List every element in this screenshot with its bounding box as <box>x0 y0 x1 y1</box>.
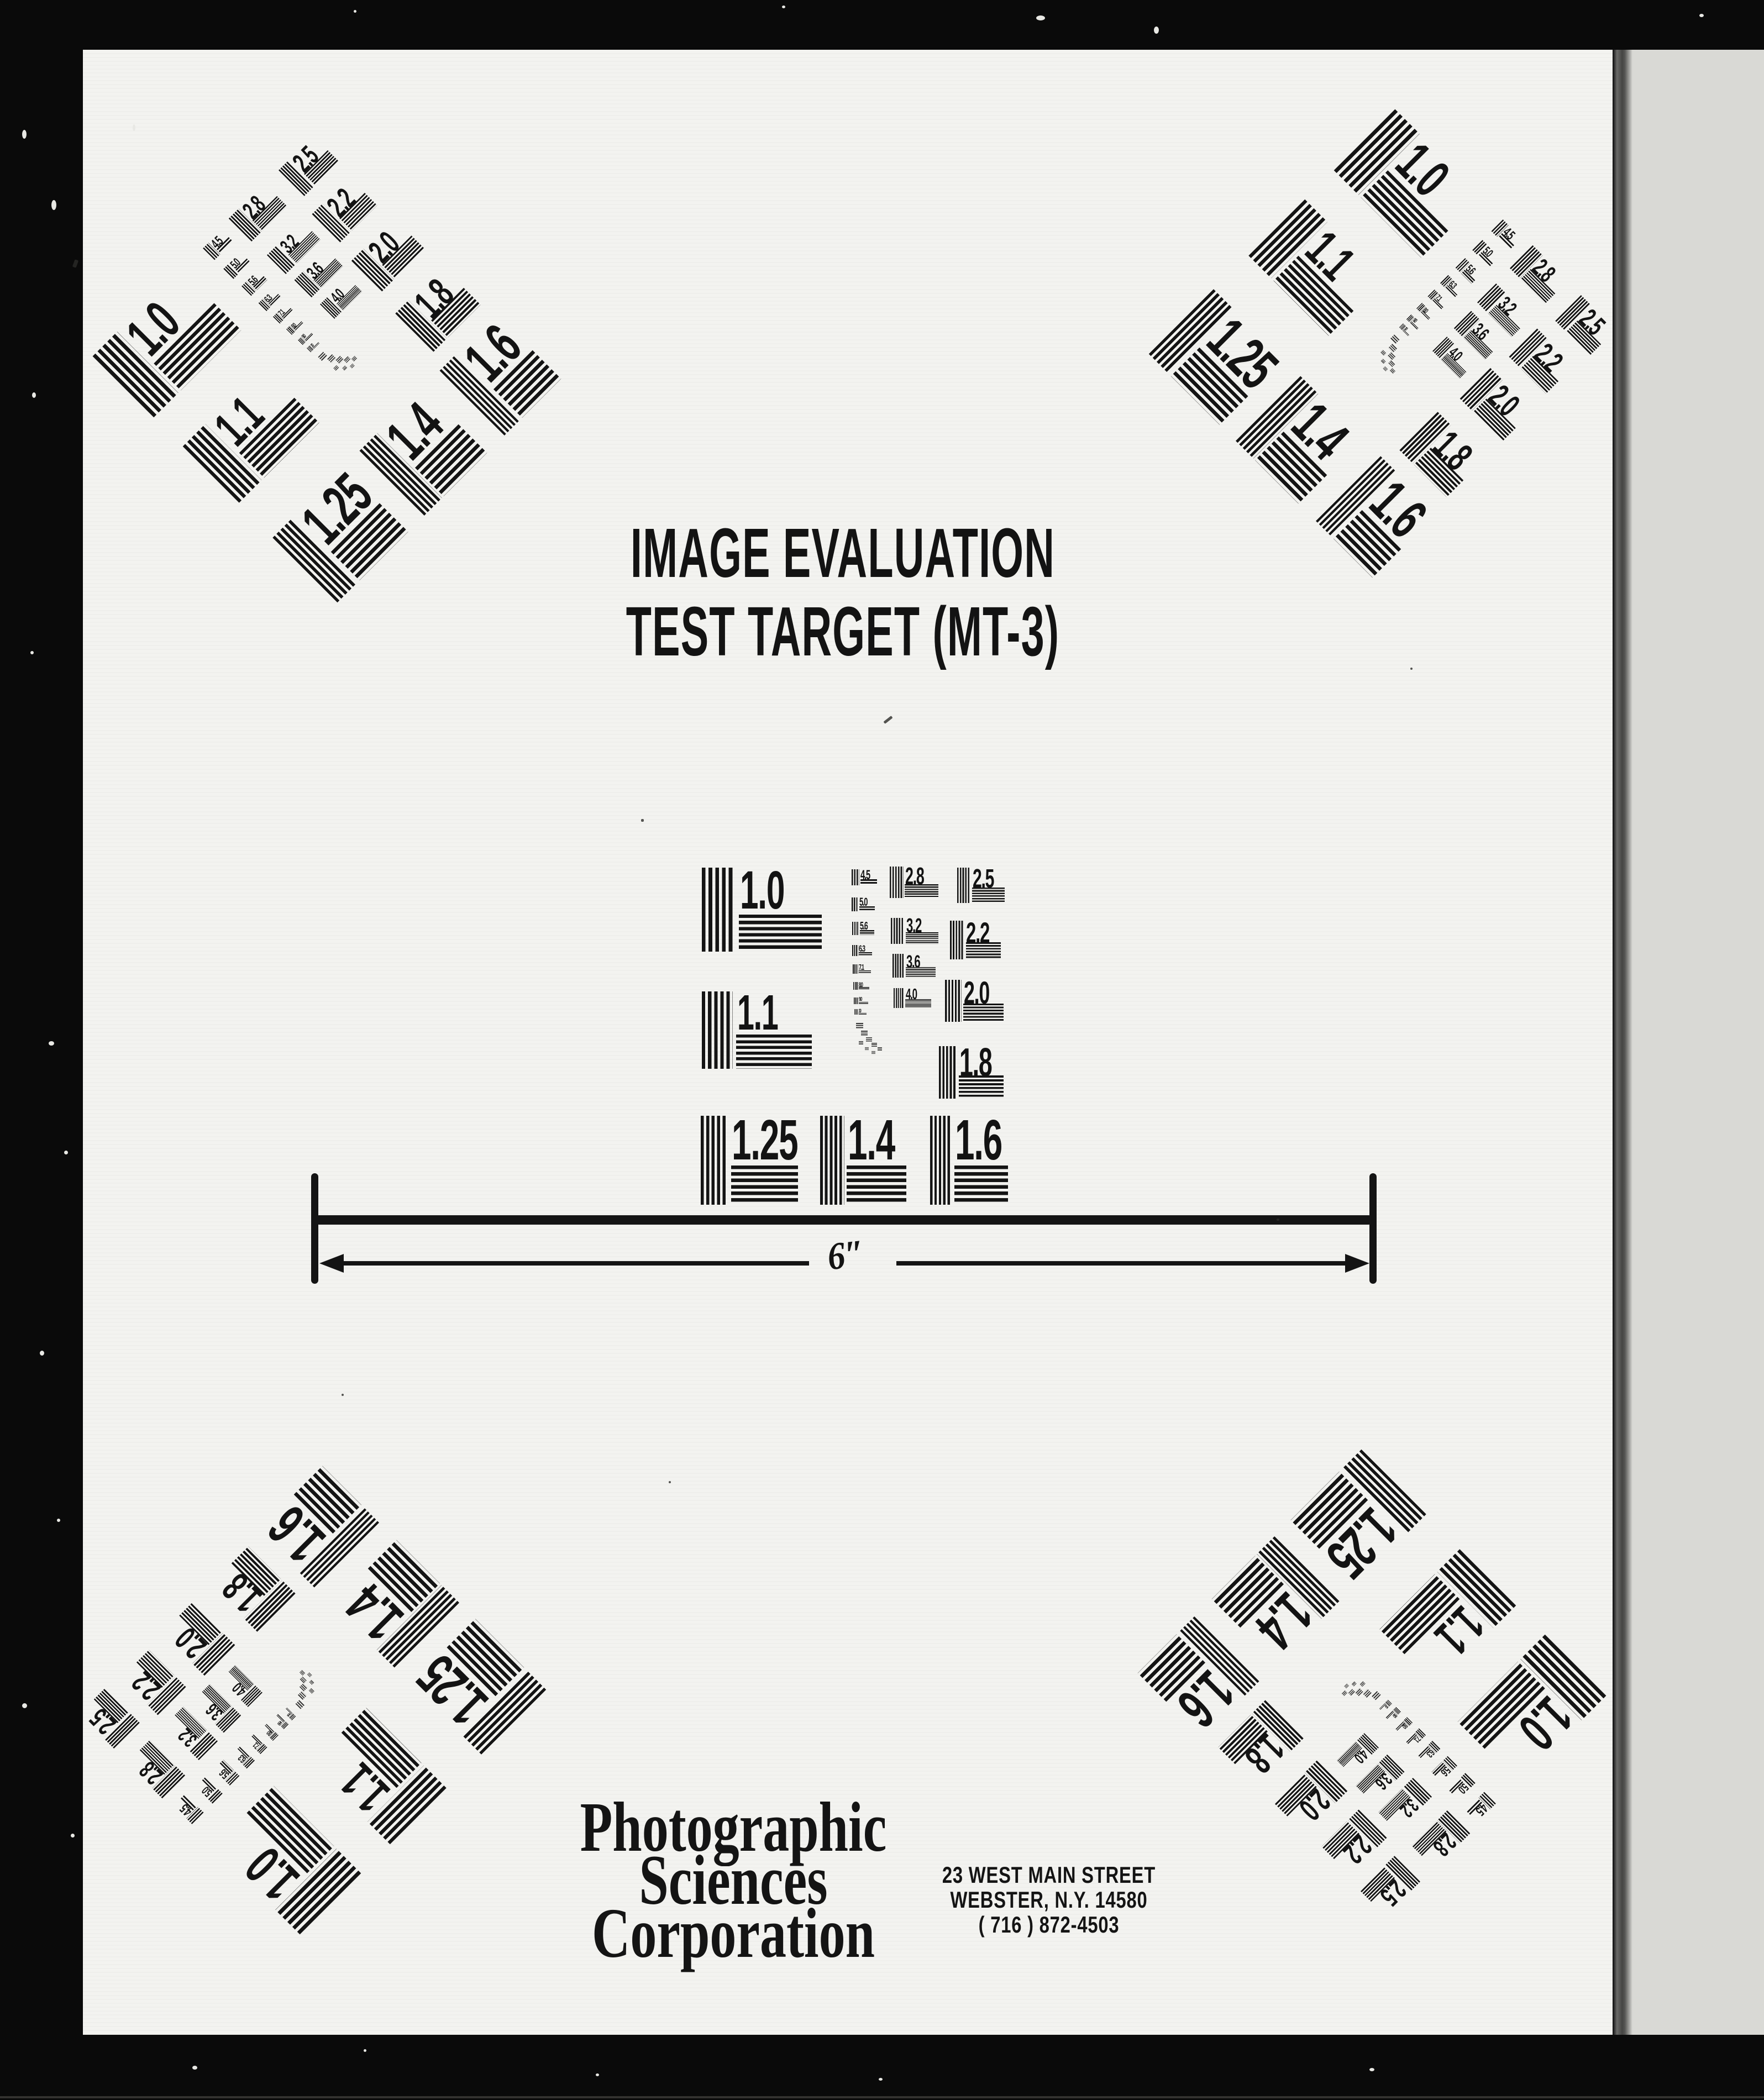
vertical-bars <box>853 982 858 990</box>
micro-resolution-mark <box>865 1047 869 1051</box>
film-speck <box>1369 2068 1374 2071</box>
resolution-element-8.0: 8.0 <box>1393 1716 1413 1736</box>
resolution-element-5.6: 5.6 <box>852 922 877 936</box>
film-speck <box>782 6 785 8</box>
micro-resolution-mark <box>350 364 355 369</box>
micro-resolution-mark <box>1388 352 1395 360</box>
resolution-element-10: 10 <box>854 1009 868 1015</box>
micro-resolution-mark <box>307 1672 313 1677</box>
horizontal-bars <box>859 1002 868 1004</box>
film-border-top <box>0 0 1764 50</box>
film-speck <box>354 10 356 13</box>
film-speck <box>32 392 36 398</box>
vertical-bars <box>945 980 962 1022</box>
horizontal-bars <box>847 1165 906 1205</box>
horizontal-bars <box>859 952 872 956</box>
film-speck <box>133 124 135 131</box>
micro-resolution-mark <box>351 356 358 362</box>
film-speck <box>596 2073 599 2076</box>
vertical-bars <box>852 897 858 911</box>
resolution-element-5.6: 5.6 <box>242 268 270 296</box>
scale-length-label: 6″ <box>826 1232 867 1279</box>
resolution-element-2.2: 2.2 <box>1322 1810 1387 1875</box>
address-line-2: WEBSTER, N.Y. 14580 <box>942 1887 1156 1912</box>
film-speck <box>57 1519 60 1522</box>
vertical-bars <box>939 1046 957 1099</box>
resolution-element-2.2: 2.2 <box>1509 329 1574 394</box>
title-line-2: TEST TARGET (MT-3) <box>626 592 1060 671</box>
micro-resolution-mark <box>298 1691 307 1700</box>
resolution-element-4.5: 4.5 <box>852 869 880 886</box>
resolution-element-8.0: 8.0 <box>286 316 306 335</box>
resolution-element-8.0: 8.0 <box>260 1721 279 1741</box>
horizontal-bars <box>860 879 877 885</box>
film-speck <box>1699 14 1704 17</box>
micro-resolution-mark <box>1389 368 1395 374</box>
micro-resolution-mark <box>1363 1689 1372 1698</box>
horizontal-bars <box>972 888 1005 903</box>
left-arrowhead-icon <box>319 1254 344 1273</box>
vertical-bars <box>891 918 904 944</box>
micro-resolution-mark <box>333 365 339 371</box>
vertical-bars <box>702 868 736 952</box>
film-speck <box>71 1834 75 1838</box>
resolution-element-2.5: 2.5 <box>957 868 1005 903</box>
micro-resolution-mark <box>335 356 343 364</box>
micro-resolution-mark <box>1341 1690 1347 1696</box>
vertical-bars <box>854 1009 858 1015</box>
resolution-element-5.0: 5.0 <box>223 250 253 280</box>
scale-end-bar-left <box>311 1173 318 1284</box>
resolution-element-2.2: 2.2 <box>950 921 1001 959</box>
horizontal-bars <box>905 999 931 1008</box>
micro-resolution-mark <box>872 1051 875 1054</box>
film-speck <box>30 651 34 654</box>
vertical-bars <box>702 991 733 1069</box>
horizontal-bars <box>859 970 870 974</box>
company-logo: Photographic Sciences Corporation <box>529 1800 938 1960</box>
micro-resolution-mark <box>300 1676 307 1683</box>
resolution-label: 1.25 <box>732 1110 797 1170</box>
resolution-element-6.3: 6.3 <box>1415 1740 1440 1765</box>
horizontal-bars <box>312 342 319 349</box>
resolution-element-5.0: 5.0 <box>1446 1773 1476 1803</box>
vertical-bars <box>930 1116 952 1205</box>
resolution-label: 1.0 <box>740 862 784 918</box>
horizontal-bars <box>959 1075 1004 1099</box>
resolution-element-7.1: 7.1 <box>1404 1728 1426 1750</box>
vertical-bars <box>820 1116 844 1205</box>
micro-resolution-mark <box>300 1670 306 1676</box>
resolution-element-7.1: 7.1 <box>1427 290 1450 312</box>
page-edge-shadow <box>1613 50 1632 2035</box>
micro-resolution-mark <box>1348 1688 1355 1695</box>
film-border-left <box>0 50 83 2035</box>
vertical-bars <box>854 998 858 1004</box>
horizontal-bars <box>736 1035 812 1069</box>
vertical-bars <box>890 867 904 898</box>
scale-arrow-line-right <box>896 1261 1347 1266</box>
film-speck <box>22 130 27 139</box>
address-line-1: 23 WEST MAIN STREET <box>942 1862 1156 1887</box>
company-line-3: Corporation <box>580 1907 887 1960</box>
page-blemish <box>669 1481 671 1483</box>
resolution-element-2.2: 2.2 <box>312 177 377 243</box>
micro-resolution-mark <box>878 1047 882 1051</box>
vertical-bars <box>853 964 858 974</box>
film-speck <box>1036 15 1045 20</box>
film-speck <box>192 2066 197 2070</box>
resolution-element-6.3: 6.3 <box>852 945 875 957</box>
horizontal-bars <box>739 915 822 952</box>
micro-resolution-mark <box>1351 1681 1357 1687</box>
right-arrowhead-icon <box>1345 1254 1369 1273</box>
resolution-element-7.1: 7.1 <box>245 1732 267 1754</box>
resolution-element-10: 10 <box>307 338 321 353</box>
horizontal-bars <box>906 967 936 978</box>
resolution-element-4.0: 4.0 <box>894 988 931 1008</box>
resolution-element-2.8: 2.8 <box>890 867 938 898</box>
resolution-element-1.8: 1.8 <box>939 1046 1004 1099</box>
micro-resolution-mark <box>300 1683 307 1691</box>
vertical-bars <box>950 921 964 959</box>
resolution-label: 1.4 <box>848 1110 895 1170</box>
vertical-bars <box>852 869 859 885</box>
scale-arrow-line-left <box>342 1261 809 1266</box>
film-speck <box>879 2078 883 2081</box>
resolution-element-2.2: 2.2 <box>121 1650 186 1715</box>
resolution-element-10: 10 <box>282 1706 296 1720</box>
vertical-bars <box>894 988 904 1008</box>
film-border-bottom <box>0 2035 1764 2100</box>
address-line-3: ( 716 ) 872-4503 <box>942 1912 1156 1937</box>
page-blemish <box>342 1394 344 1396</box>
resolution-element-3.2: 3.2 <box>891 918 938 944</box>
resolution-element-5.6: 5.6 <box>212 1757 240 1786</box>
horizontal-bars <box>963 1004 1004 1022</box>
horizontal-bars <box>859 906 875 911</box>
resolution-element-1.25: 1.25 <box>701 1116 798 1205</box>
micro-resolution-mark <box>1380 350 1386 356</box>
resolution-element-5.0: 5.0 <box>852 897 878 912</box>
resolution-element-1.1: 1.1 <box>702 991 812 1069</box>
film-edge-sliver <box>0 2096 1764 2098</box>
micro-resolution-mark <box>866 1037 872 1042</box>
resolution-element-9.0: 9.0 <box>854 998 870 1005</box>
resolution-element-8.0: 8.0 <box>853 982 872 990</box>
adjacent-page-edge <box>1632 50 1764 2035</box>
horizontal-bars <box>905 884 938 898</box>
vertical-bars <box>852 922 859 935</box>
resolution-element-5.6: 5.6 <box>1429 1756 1457 1784</box>
micro-resolution-mark <box>309 1679 314 1685</box>
vertical-bars <box>701 1116 728 1205</box>
micro-resolution-mark <box>1343 1683 1349 1689</box>
horizontal-bars <box>860 930 874 935</box>
vertical-bars <box>893 954 905 978</box>
page-blemish <box>1410 668 1413 670</box>
resolution-element-5.6: 5.6 <box>1455 258 1483 286</box>
page-blemish <box>1277 1219 1279 1221</box>
micro-resolution-mark <box>1380 359 1386 364</box>
horizontal-bars <box>954 1165 1008 1205</box>
resolution-element-1.4: 1.4 <box>820 1116 906 1205</box>
microfilm-frame: 1.01.11.251.41.61.82.02.22.52.83.23.64.0… <box>0 0 1764 2100</box>
resolution-element-8.0: 8.0 <box>1416 303 1435 322</box>
micro-resolution-mark <box>344 356 351 364</box>
resolution-element-2.0: 2.0 <box>945 980 1004 1022</box>
micro-resolution-mark <box>1388 344 1397 353</box>
film-speck <box>40 1351 44 1356</box>
micro-resolution-mark <box>1383 366 1388 372</box>
micro-resolution-mark <box>1359 1681 1366 1687</box>
resolution-element-5.0: 5.0 <box>1472 240 1502 270</box>
micro-resolution-mark <box>308 1688 314 1694</box>
micro-resolution-mark <box>861 1031 868 1036</box>
film-speck <box>364 2049 366 2052</box>
resolution-label: 1.6 <box>955 1110 1002 1170</box>
micro-resolution-mark <box>856 1023 863 1029</box>
film-speck <box>49 1041 54 1046</box>
resolution-element-3.6: 3.6 <box>893 954 936 978</box>
resolution-element-7.1: 7.1 <box>273 302 295 324</box>
micro-resolution-mark <box>872 1043 877 1047</box>
micro-resolution-mark <box>1355 1688 1363 1696</box>
resolution-element-10: 10 <box>1399 323 1413 338</box>
resolution-element-1.0: 1.0 <box>702 868 822 952</box>
micro-resolution-mark <box>1371 1691 1381 1700</box>
page-blemish <box>641 819 644 822</box>
micro-resolution-mark <box>1390 334 1400 344</box>
horizontal-bars <box>966 942 1001 959</box>
scale-end-bar-right <box>1369 1173 1377 1284</box>
horizontal-bars <box>906 932 938 944</box>
resolution-label: 1.1 <box>737 986 778 1038</box>
film-speck <box>51 200 56 210</box>
film-speck <box>22 1703 27 1708</box>
micro-resolution-mark <box>1388 360 1395 368</box>
film-speck <box>1154 27 1159 34</box>
micro-resolution-mark <box>327 354 336 363</box>
test-target-center: 1.01.11.251.41.61.82.02.22.52.83.23.64.0… <box>701 867 1008 1205</box>
horizontal-bars <box>859 987 869 990</box>
scale-rule-line <box>317 1215 1371 1225</box>
title-line-1: IMAGE EVALUATION <box>626 514 1060 592</box>
title-block: IMAGE EVALUATION TEST TARGET (MT-3) <box>481 514 1204 671</box>
resolution-element-7.1: 7.1 <box>853 964 873 974</box>
vertical-bars <box>957 868 970 903</box>
micro-resolution-mark <box>295 1699 305 1709</box>
horizontal-bars <box>859 1013 867 1015</box>
vertical-bars <box>852 945 858 956</box>
micro-resolution-mark <box>318 351 328 361</box>
film-speck <box>64 1151 68 1154</box>
micro-resolution-mark <box>342 365 348 371</box>
resolution-element-1.6: 1.6 <box>930 1116 1008 1205</box>
resolution-element-4.0: 4.0 <box>320 277 362 319</box>
micro-resolution-mark <box>859 1041 863 1045</box>
horizontal-bars <box>731 1165 798 1205</box>
address-block: 23 WEST MAIN STREET WEBSTER, N.Y. 14580 … <box>912 1862 1185 1937</box>
resolution-element-5.0: 5.0 <box>193 1774 223 1804</box>
